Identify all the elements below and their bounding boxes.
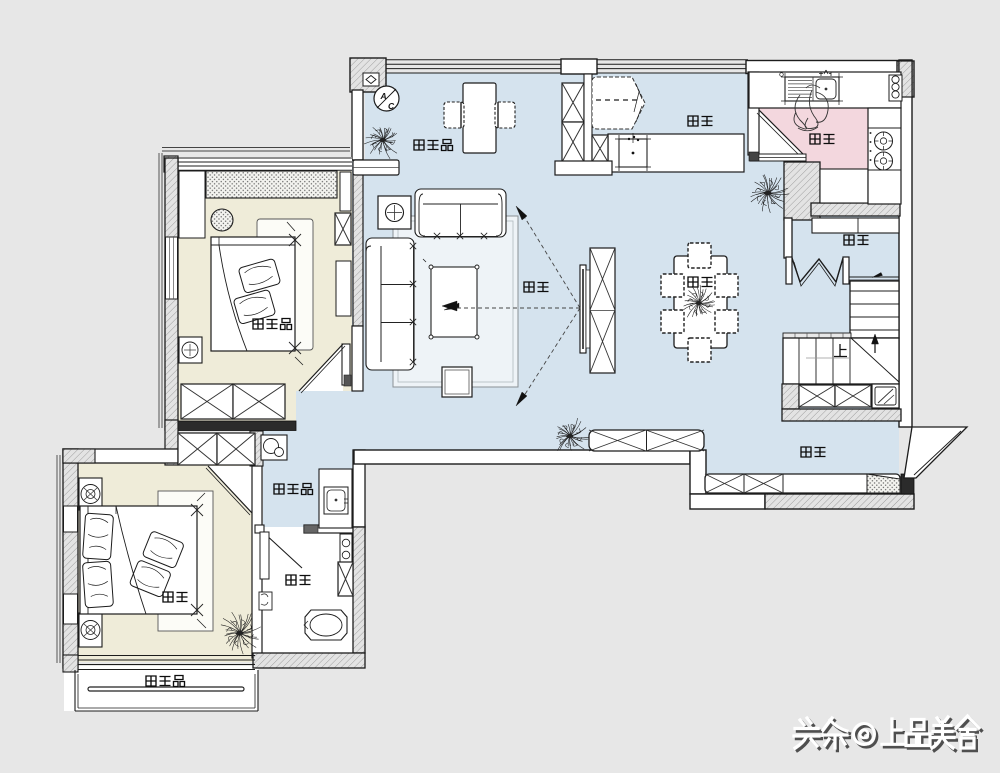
- svg-text:A: A: [380, 91, 387, 101]
- svg-text:C: C: [388, 101, 395, 111]
